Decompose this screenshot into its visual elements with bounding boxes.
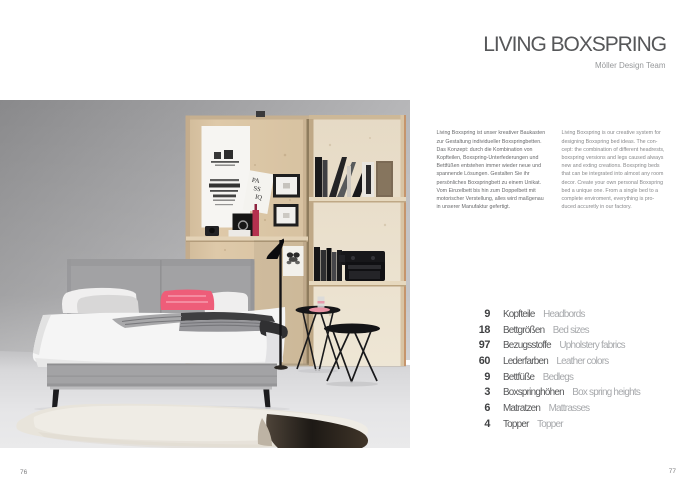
svg-text:PA: PA xyxy=(251,177,260,185)
